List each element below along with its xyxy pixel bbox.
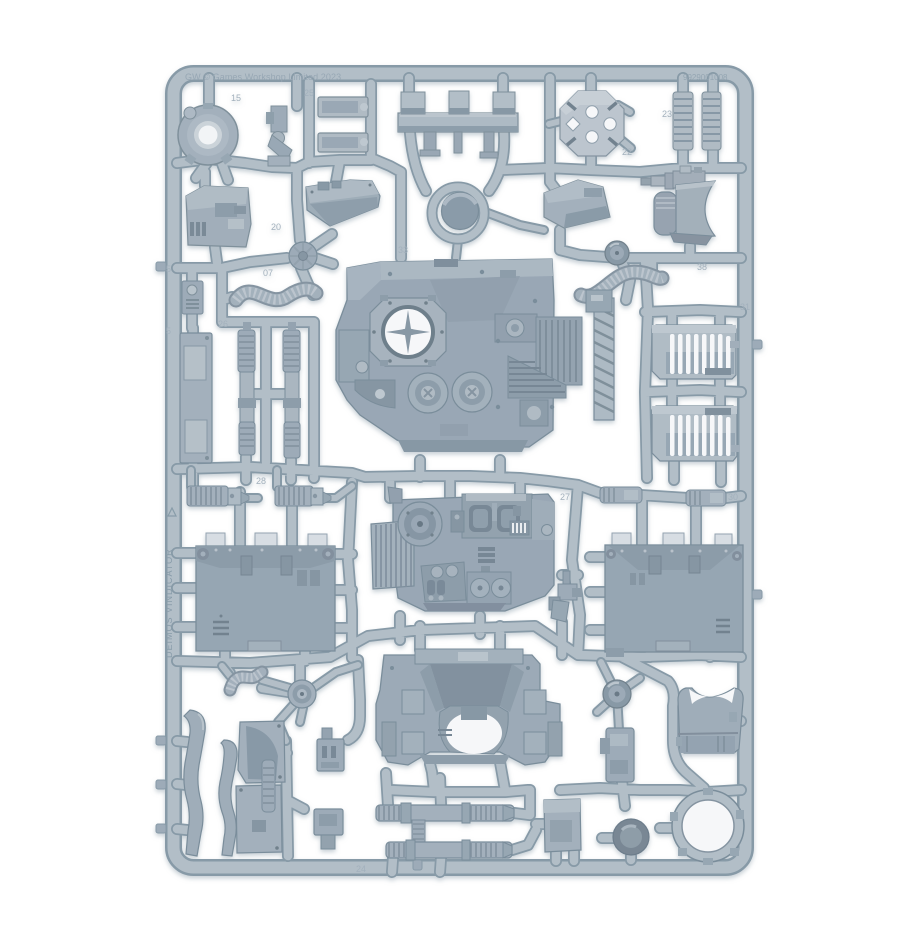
svg-text:27: 27 <box>560 492 570 502</box>
svg-text:23: 23 <box>662 109 672 119</box>
svg-text:5: 5 <box>166 264 171 274</box>
svg-text:GW © Games Workshop Limited 2: GW © Games Workshop Limited 2023 <box>185 72 341 82</box>
svg-text:20: 20 <box>271 222 281 232</box>
svg-text:30: 30 <box>728 492 738 502</box>
svg-text:25: 25 <box>304 88 314 98</box>
svg-text:38: 38 <box>697 262 707 272</box>
svg-text:5: 5 <box>166 326 171 336</box>
svg-text:28: 28 <box>256 476 266 486</box>
svg-text:26: 26 <box>218 319 228 329</box>
svg-text:31: 31 <box>740 302 750 312</box>
svg-text:15: 15 <box>231 93 241 103</box>
svg-text:22: 22 <box>622 147 632 157</box>
svg-text:24: 24 <box>356 864 366 874</box>
svg-text:DEIMOS VINDICATOR: DEIMOS VINDICATOR <box>164 548 174 658</box>
svg-text:9929001008: 9929001008 <box>683 73 728 82</box>
svg-text:33: 33 <box>398 245 408 255</box>
svg-text:07: 07 <box>263 268 273 278</box>
